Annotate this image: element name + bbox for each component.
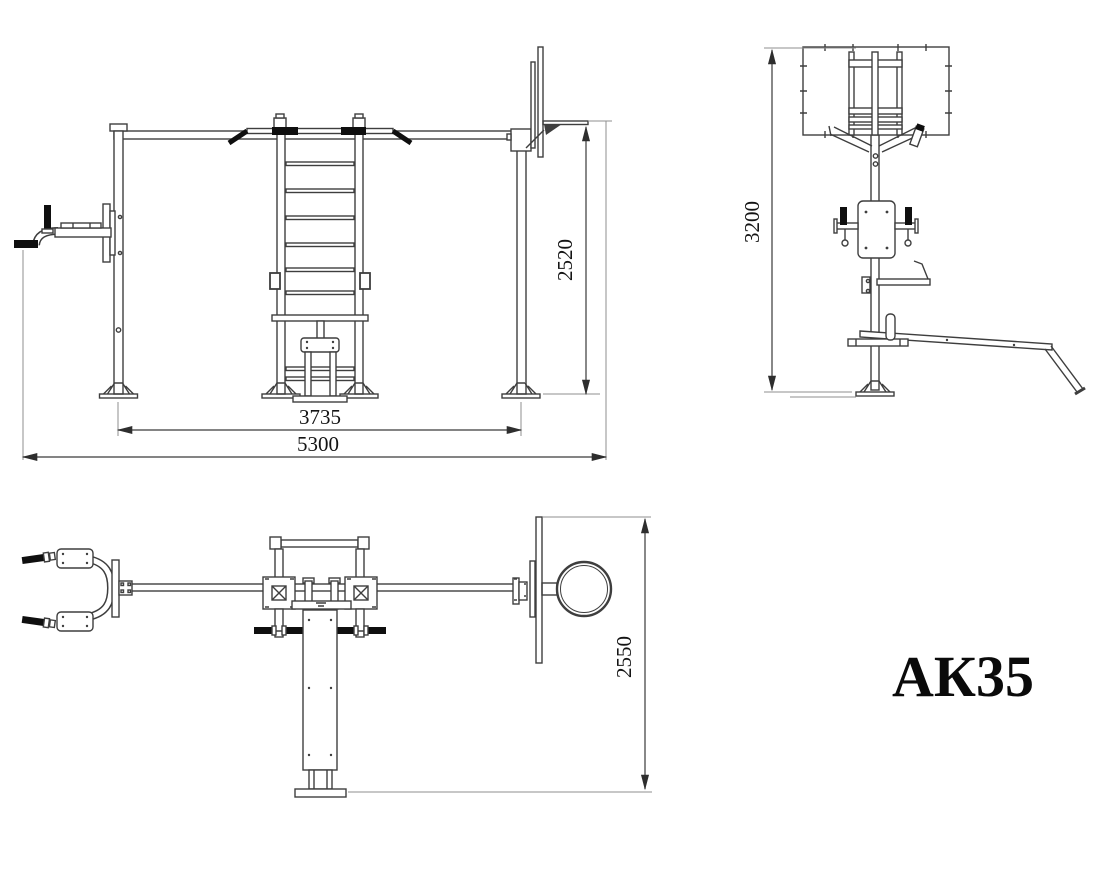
- grip-segment: [341, 127, 366, 135]
- bench-handle: [886, 314, 895, 340]
- dimension-2520: 2520: [543, 127, 600, 394]
- swedish-ladder: [262, 131, 378, 398]
- dimension-2550: 2550: [348, 517, 652, 792]
- rail-clamp: [360, 273, 370, 289]
- grip-top: [254, 627, 272, 634]
- grip-top: [286, 627, 304, 634]
- rim-bracket: [544, 124, 562, 135]
- back-pad-and-dip-handles: [834, 201, 918, 258]
- abdominal-bench-front: [272, 315, 368, 402]
- dim-label-5300: 5300: [297, 432, 339, 456]
- grip-top: [336, 627, 354, 634]
- press-handles-top: [22, 549, 132, 631]
- dim-label-2550: 2550: [612, 636, 636, 678]
- front-view: 3735 5300 2520: [14, 47, 612, 460]
- basketball-unit-front: [526, 47, 588, 157]
- backboard-edge: [531, 62, 535, 148]
- horizontal-grip: [14, 240, 38, 248]
- dip-grip: [905, 207, 912, 225]
- dim-label-3735: 3735: [299, 405, 341, 429]
- incline-bench-side: [790, 314, 1085, 397]
- rail-clamp: [270, 273, 280, 289]
- dip-grip: [840, 207, 847, 225]
- grip-top: [22, 554, 45, 564]
- backboard-top-edge: [536, 517, 542, 663]
- main-beam-top: [125, 584, 517, 591]
- left-post: [100, 131, 138, 398]
- right-post: [502, 129, 540, 398]
- grip-top: [22, 616, 45, 626]
- bench-top: [295, 610, 346, 797]
- basketball-unit-top: [513, 517, 611, 663]
- grip-segment: [272, 127, 298, 135]
- grip-top: [368, 627, 386, 634]
- ladder-frame-top: [263, 537, 377, 609]
- backboard-edge: [538, 47, 543, 157]
- dim-label-2520: 2520: [553, 239, 577, 281]
- model-code-label: АК35: [892, 644, 1034, 709]
- dimension-3735: 3735: [118, 402, 521, 436]
- basketball-rim: [543, 121, 588, 125]
- side-view: 3200: [740, 44, 1085, 397]
- dim-label-3200: 3200: [740, 201, 764, 243]
- drawing-sheet: 3735 5300 2520: [0, 0, 1110, 879]
- technical-drawing-canvas: 3735 5300 2520: [0, 0, 1110, 879]
- post-flange-plate: [263, 577, 295, 609]
- vertical-grip: [44, 205, 51, 230]
- hoop-top: [557, 562, 611, 616]
- plan-view: 2550: [22, 517, 652, 797]
- press-handles-attachment: [14, 204, 122, 262]
